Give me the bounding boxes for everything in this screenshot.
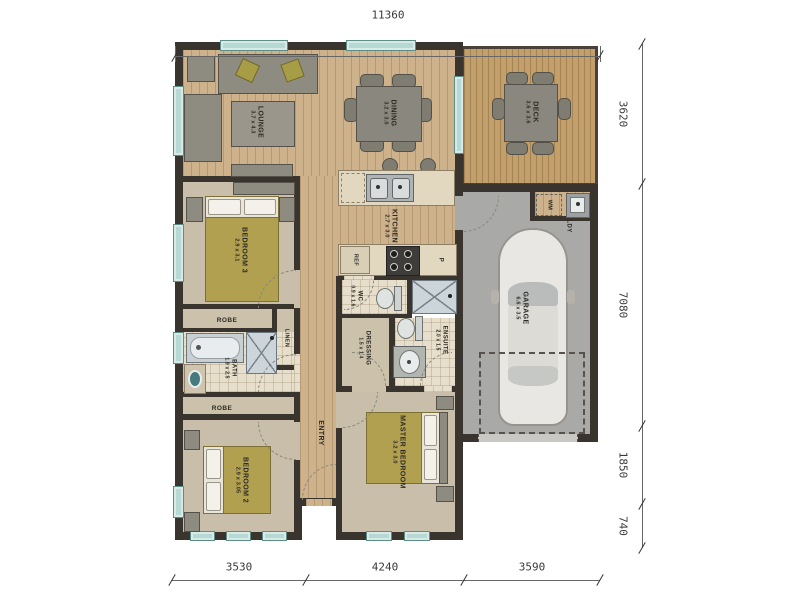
pantry-text: P xyxy=(436,258,443,262)
robe-text: ROBE xyxy=(212,405,232,412)
window xyxy=(454,76,464,154)
bathtub-drain xyxy=(196,345,201,350)
robe-text: ROBE xyxy=(217,317,237,324)
dimension-label-right-3: 1850 xyxy=(617,452,630,479)
toilet-tank xyxy=(394,286,402,311)
side-table xyxy=(187,56,215,82)
wall-segment xyxy=(590,192,598,442)
label-pantry: P xyxy=(436,258,443,262)
door-gap xyxy=(455,196,463,230)
window xyxy=(226,531,251,541)
room-size: 2.9 x 3.05 xyxy=(234,467,241,493)
room-label-entry: ENTRY xyxy=(316,420,324,445)
chair xyxy=(558,98,571,120)
label-fridge: REF xyxy=(352,254,359,266)
chair xyxy=(532,142,554,155)
shower-head xyxy=(270,336,274,340)
dimension-line xyxy=(172,580,600,581)
bedside-table xyxy=(436,396,454,410)
room-name: DECK xyxy=(530,101,538,122)
basin-drain xyxy=(407,360,411,364)
dimension-label-bottom-1: 3530 xyxy=(226,561,253,574)
basin xyxy=(188,370,202,388)
pillow xyxy=(424,449,437,480)
room-name: LOUNGE xyxy=(255,106,263,138)
room-size: 3.7 x 4.3 xyxy=(249,110,256,133)
pillow xyxy=(206,449,221,479)
room-label-ensuite: ENSUITE 2.0 x 1.5 xyxy=(434,326,447,355)
floor-robe-bottom xyxy=(183,397,294,414)
dimension-label-right-1: 3620 xyxy=(617,101,630,128)
bedside-table xyxy=(184,512,200,532)
room-label-kitchen: KITCHEN 2.7 x 3.0 xyxy=(383,209,398,243)
bedside-table xyxy=(186,197,203,222)
room-size: 6.6 x 3.5 xyxy=(514,296,521,319)
dimension-label-bottom-2: 4240 xyxy=(372,561,399,574)
room-name: GARAGE xyxy=(520,291,528,324)
room-name: BEDROOM 3 xyxy=(239,227,247,273)
toilet xyxy=(397,318,415,339)
window xyxy=(262,531,287,541)
linen-text: LINEN xyxy=(283,329,290,348)
burner xyxy=(390,263,398,271)
sink-drain xyxy=(376,185,380,189)
room-label-garage: GARAGE 6.6 x 3.5 xyxy=(514,291,529,324)
bed-headboard xyxy=(439,412,448,484)
sink-drain xyxy=(398,185,402,189)
window xyxy=(173,224,184,282)
room-size: 0.9 x 1.6 xyxy=(349,285,355,306)
window xyxy=(173,86,184,156)
window xyxy=(190,531,215,541)
wall-segment xyxy=(336,506,342,534)
dimension-label-bottom-3: 3590 xyxy=(519,561,546,574)
pillow xyxy=(424,415,437,446)
room-size: 1.5 x 1.4 xyxy=(357,337,363,358)
room-name: KITCHEN xyxy=(389,209,397,243)
room-label-bedroom2: BEDROOM 2 2.9 x 3.05 xyxy=(234,457,249,503)
toilet xyxy=(376,288,394,309)
bedside-table xyxy=(279,197,295,222)
bedside-table xyxy=(436,486,454,502)
wall-segment xyxy=(183,414,298,420)
wall-segment xyxy=(342,314,412,318)
toilet-tank xyxy=(415,316,423,341)
garage-door-swing xyxy=(479,352,585,434)
dresser xyxy=(233,182,295,195)
label-linen: LINEN xyxy=(283,329,290,348)
window xyxy=(366,531,392,541)
room-name: DRESSING xyxy=(363,331,370,366)
room-name: BEDROOM 2 xyxy=(240,457,248,503)
wall-segment xyxy=(175,42,462,50)
room-name: MASTER BEDROOM xyxy=(397,415,405,489)
wm-text: WM xyxy=(546,200,553,211)
window xyxy=(173,332,184,364)
room-label-deck: DECK 3.6 x 3.6 xyxy=(524,100,539,123)
room-label-dining: DINING 3.2 x 3.0 xyxy=(382,100,397,127)
room-label-wc: WC 0.9 x 1.6 xyxy=(349,285,362,306)
floor-plan: LOUNGE 3.7 x 4.3 DINING 3.2 x 3.0 DECK 3… xyxy=(0,0,800,600)
door-gap xyxy=(306,499,332,506)
label-laundry: LDY xyxy=(564,219,571,232)
window xyxy=(404,531,430,541)
label-robe-top: ROBE xyxy=(217,309,237,327)
burner xyxy=(404,250,412,258)
label-washing-machine: WM xyxy=(546,200,553,211)
room-size: 3.2 x 3.0 xyxy=(391,440,398,463)
tv-unit xyxy=(231,164,293,177)
room-size: 2.9 x 3.1 xyxy=(233,238,240,261)
car-mirror xyxy=(491,290,499,304)
wall-segment xyxy=(455,184,598,192)
pillow xyxy=(206,482,221,511)
tub-drain xyxy=(576,202,580,206)
pillow xyxy=(208,199,241,215)
window xyxy=(173,486,184,518)
burner xyxy=(390,250,398,258)
dimension-label-top: 11360 xyxy=(371,9,404,22)
sofa xyxy=(184,94,222,162)
porch-notch xyxy=(302,506,336,540)
ldy-text: LDY xyxy=(564,219,571,232)
ref-text: REF xyxy=(352,254,359,266)
burner xyxy=(404,263,412,271)
room-size: 2.0 x 1.5 xyxy=(434,329,440,350)
room-label-lounge: LOUNGE 3.7 x 4.3 xyxy=(249,106,264,138)
car-mirror xyxy=(567,290,575,304)
room-name: ENSUITE xyxy=(440,326,447,355)
room-label-bedroom3: BEDROOM 3 2.9 x 3.1 xyxy=(233,227,248,273)
room-name: BATH xyxy=(229,359,236,377)
bedside-table xyxy=(184,430,200,450)
wall-segment xyxy=(530,192,535,218)
room-size: 2.7 x 3.0 xyxy=(383,214,390,237)
room-name: ENTRY xyxy=(316,420,324,445)
label-robe-bottom: ROBE xyxy=(212,397,232,415)
dimension-line xyxy=(642,44,643,548)
door-gap xyxy=(424,386,452,392)
room-label-bath: BATH 1.9 x 2.5 xyxy=(223,357,236,378)
dishwasher xyxy=(341,173,365,203)
window xyxy=(346,40,416,51)
room-size: 3.2 x 3.0 xyxy=(382,101,389,124)
room-name: DINING xyxy=(388,100,396,127)
dimension-label-right-2: 7080 xyxy=(617,292,630,319)
room-name: WC xyxy=(355,291,362,302)
wall-segment xyxy=(296,506,302,534)
dimension-line xyxy=(175,56,600,57)
chair xyxy=(506,142,528,155)
room-label-master-bedroom: MASTER BEDROOM 3.2 x 3.0 xyxy=(391,415,406,489)
room-size: 3.6 x 3.6 xyxy=(524,100,531,123)
window xyxy=(220,40,288,51)
dimension-label-right-4: 740 xyxy=(617,516,630,536)
room-label-dressing: DRESSING 1.5 x 1.4 xyxy=(357,331,370,366)
shower-head xyxy=(448,294,452,298)
garage-door-opening xyxy=(478,434,578,442)
room-size: 1.9 x 2.5 xyxy=(223,357,229,378)
pillow xyxy=(244,199,276,215)
